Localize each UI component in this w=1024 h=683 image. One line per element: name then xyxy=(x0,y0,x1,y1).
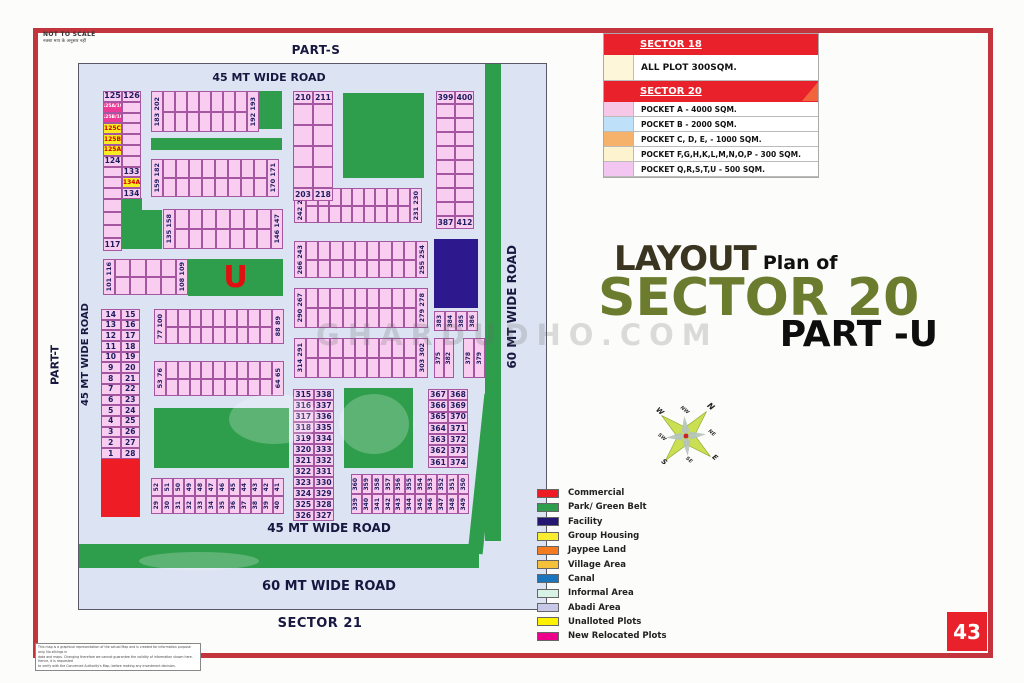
plot-cell xyxy=(318,241,330,260)
legend-row: POCKET F,G,H,K,L,M,N,O,P - 300 SQM. xyxy=(604,147,818,162)
plot-cell: 27 xyxy=(121,437,141,448)
plot-row: 117 xyxy=(103,238,122,251)
plot-row: 1415 xyxy=(101,309,140,320)
plot-cell: 26 xyxy=(121,427,141,438)
plot-number: 326 xyxy=(295,512,311,520)
plot-cell xyxy=(367,338,379,358)
plot-cell: 125A xyxy=(103,145,122,156)
legend-item: Commercial xyxy=(537,486,737,500)
plot-column xyxy=(213,309,225,344)
plot-number: 218 xyxy=(315,191,331,199)
plot-column: 351348 xyxy=(447,474,458,514)
plot-column xyxy=(176,159,189,197)
legend-item: Village Area xyxy=(537,557,737,571)
plot-row: 363372 xyxy=(428,434,468,445)
plot-cell xyxy=(237,309,249,327)
legend-row: POCKET A - 4000 SQM. xyxy=(604,102,818,117)
legend-item: Abadi Area xyxy=(537,600,737,614)
page-number-badge: 43 xyxy=(947,612,987,651)
plot-cell xyxy=(223,91,235,112)
plot-cell xyxy=(189,229,203,249)
plot-cell xyxy=(115,277,130,295)
plot-column xyxy=(306,241,318,278)
plot-cell: 38 xyxy=(251,496,262,514)
plot-cell xyxy=(201,309,213,327)
plot-column xyxy=(189,159,202,197)
plot-number: 133 xyxy=(124,168,140,176)
strip-77-100: 77 10088 89 xyxy=(154,309,284,344)
plot-cell: 34 xyxy=(206,496,217,514)
plot-cell: 146 147 xyxy=(271,209,283,249)
plot-row xyxy=(103,225,122,238)
plot-number: 30 xyxy=(165,501,171,509)
plot-column xyxy=(318,241,330,278)
plot-cell: 382 xyxy=(444,338,454,378)
plot-cell: 125B/19 xyxy=(103,113,122,124)
legend-label: Abadi Area xyxy=(568,603,621,613)
plot-cell xyxy=(343,260,355,279)
plot-column xyxy=(375,188,387,223)
plot-number: 125A xyxy=(104,147,121,153)
plot-number: 170 171 xyxy=(270,163,277,192)
plot-cell: 22 xyxy=(121,384,141,395)
plot-cell: 43 xyxy=(251,478,262,496)
plot-cell xyxy=(146,259,161,277)
plot-cell xyxy=(248,309,260,327)
plot-row: 134A xyxy=(103,177,141,188)
plot-cell xyxy=(355,338,367,358)
legend-item: Jaypee Land xyxy=(537,543,737,557)
plot-cell xyxy=(330,288,342,308)
plot-number: 9 xyxy=(108,364,113,372)
plot-cell xyxy=(329,206,341,224)
plot-cell xyxy=(122,113,141,124)
plot-number: 10 xyxy=(106,353,116,361)
plot-row xyxy=(436,174,474,188)
plot-cell xyxy=(352,188,364,206)
plot-cell xyxy=(455,104,474,118)
plot-cell xyxy=(225,309,237,327)
plot-cell: 9 xyxy=(101,362,121,373)
plot-cell xyxy=(215,178,228,197)
plot-cell: 15 xyxy=(121,309,141,320)
plot-cell: 50 xyxy=(173,478,184,496)
plot-cell xyxy=(379,241,391,260)
legend-swatch xyxy=(537,560,559,569)
plot-cell: 16 xyxy=(121,320,141,331)
plot-number: 266 243 xyxy=(297,245,304,274)
plot-number: 337 xyxy=(316,402,332,410)
park-L-upper xyxy=(121,198,142,249)
not-to-scale-note: NOT TO SCALE नक्शा माप के अनुसार नहीं xyxy=(43,31,95,44)
plot-cell xyxy=(330,358,342,378)
plot-number: 47 xyxy=(209,483,215,491)
park-L-foot xyxy=(142,210,162,249)
plot-cell xyxy=(293,104,313,125)
plot-column: 354345 xyxy=(415,474,426,514)
plot-column xyxy=(367,288,379,328)
plot-column xyxy=(364,188,376,223)
plot-column xyxy=(199,91,211,132)
block-117: 117 xyxy=(103,199,122,251)
plot-cell xyxy=(146,277,161,295)
plot-column xyxy=(398,188,410,223)
strip-53-76: 53 7664 65 xyxy=(154,361,284,396)
plot-cell xyxy=(436,202,455,216)
plot-cell: 373 xyxy=(448,445,468,456)
plot-number: 346 xyxy=(428,498,434,511)
plot-number: 333 xyxy=(316,446,332,454)
road-left-45mt: 45 MT WIDE ROAD xyxy=(77,279,93,429)
plot-row xyxy=(293,146,333,167)
plot-cell: 349 xyxy=(458,494,469,514)
plot-cell xyxy=(225,361,237,379)
plot-column xyxy=(190,361,202,396)
plot-column xyxy=(187,91,199,132)
plot-column xyxy=(257,209,271,249)
plot-column xyxy=(248,361,260,396)
legend-swatch xyxy=(604,132,634,146)
plot-number: 24 xyxy=(125,407,135,415)
plot-cell: 338 xyxy=(314,389,335,400)
plot-cell xyxy=(175,209,189,229)
plot-cell: 117 xyxy=(103,238,122,251)
plot-cell: 341 xyxy=(372,494,383,514)
plot-cell: 356 xyxy=(394,474,405,494)
plot-cell xyxy=(103,212,122,225)
compass-label-sw: SW xyxy=(656,432,667,443)
plot-number: 363 xyxy=(430,436,446,444)
plot-row xyxy=(436,104,474,118)
road-label-text: 60 MT WIDE ROAD xyxy=(505,245,519,369)
plot-cell: 370 xyxy=(448,412,468,423)
plot-cell: 44 xyxy=(240,478,251,496)
plot-number: 53 76 xyxy=(157,368,164,388)
plot-cell xyxy=(379,308,391,328)
plot-number: 362 xyxy=(430,447,446,455)
plot-cell: 345 xyxy=(415,494,426,514)
plot-number: 211 xyxy=(315,94,331,102)
plot-number: 38 xyxy=(253,501,259,509)
plot-column xyxy=(225,309,237,344)
plot-cell xyxy=(257,209,271,229)
plot-cell xyxy=(166,327,178,345)
plot-number: 125A/19 xyxy=(103,105,122,110)
plot-cell: 339 xyxy=(351,494,362,514)
disclaimer-box: This map is a graphical representation o… xyxy=(35,643,201,671)
legend-label: New Relocated Plots xyxy=(568,631,667,641)
compass-label-s: S xyxy=(660,457,669,466)
plot-cell xyxy=(202,159,215,178)
plot-cell xyxy=(201,361,213,379)
plot-cell xyxy=(166,309,178,327)
plot-cell xyxy=(213,309,225,327)
plot-column xyxy=(318,288,330,328)
legend-label: Group Housing xyxy=(568,531,639,541)
plot-number: 77 100 xyxy=(157,314,164,339)
plot-row: 362373 xyxy=(428,445,468,456)
plot-column xyxy=(379,338,391,378)
plot-cell xyxy=(355,358,367,378)
legend-label: ALL PLOT 300SQM. xyxy=(634,55,818,80)
legend-swatch xyxy=(604,162,634,176)
road-bottom-60mt: 60 MT WIDE ROAD xyxy=(229,578,429,594)
plot-cell: 332 xyxy=(314,455,335,466)
plot-number: 2 xyxy=(108,439,113,447)
plot-cell xyxy=(260,361,272,379)
plot-cell: 36 xyxy=(229,496,240,514)
plot-cell: 360 xyxy=(351,474,362,494)
plot-cell xyxy=(293,125,313,146)
plot-cell xyxy=(343,308,355,328)
plot-number: 36 xyxy=(231,501,237,509)
plot-cell: 329 xyxy=(314,488,335,499)
plot-column xyxy=(254,159,267,197)
plot-cell: 134 xyxy=(122,188,141,199)
plot-number: 21 xyxy=(125,375,135,383)
plot-number: 382 xyxy=(446,352,452,365)
plot-cell: 170 171 xyxy=(267,159,279,197)
plot-number: 399 xyxy=(438,94,454,102)
plot-cell: 108 109 xyxy=(176,259,188,295)
plot-row: 367368 xyxy=(428,389,468,400)
plot-number: 332 xyxy=(316,457,332,465)
plot-column xyxy=(228,159,241,197)
plot-row: 399400 xyxy=(436,91,474,104)
legend-swatch xyxy=(537,517,559,526)
plot-number: 365 xyxy=(430,413,446,421)
plot-size-legend: SECTOR 18ALL PLOT 300SQM.SECTOR 20POCKET… xyxy=(603,33,819,178)
plot-column xyxy=(202,209,216,249)
plot-number: 338 xyxy=(316,391,332,399)
plot-column xyxy=(367,338,379,378)
sector-21-label: SECTOR 21 xyxy=(255,616,385,631)
plot-number: 359 xyxy=(364,478,370,491)
plot-cell: 314 291 xyxy=(294,338,306,378)
plot-row: 125126 xyxy=(103,91,141,102)
plot-number: 159 182 xyxy=(154,163,161,192)
plot-cell: 334 xyxy=(314,433,335,444)
plot-number: 348 xyxy=(450,498,456,511)
plot-cell xyxy=(122,123,141,134)
legend-swatch xyxy=(537,617,559,626)
plot-number: 1 xyxy=(108,450,113,458)
plot-number: 117 xyxy=(105,241,121,249)
plot-cell xyxy=(436,132,455,146)
plot-number: 52 xyxy=(154,483,160,491)
plot-cell xyxy=(178,379,190,397)
plot-number: 371 xyxy=(450,425,466,433)
watermark-shape xyxy=(229,394,319,444)
plot-number: 125B/19 xyxy=(103,116,122,121)
plot-column xyxy=(379,241,391,278)
plot-cell: 18 xyxy=(121,341,141,352)
plot-number: 43 xyxy=(253,483,259,491)
plot-number: 125B xyxy=(104,137,121,143)
plot-column xyxy=(216,209,230,249)
plot-column xyxy=(352,188,364,223)
plot-cell: 279 278 xyxy=(416,288,428,328)
plot-cell xyxy=(404,288,416,308)
legend-row: POCKET C, D, E, - 1000 SQM. xyxy=(604,132,818,147)
plot-cell xyxy=(237,379,249,397)
plot-cell xyxy=(201,327,213,345)
plot-cell xyxy=(436,104,455,118)
plot-cell xyxy=(230,229,244,249)
plot-cell xyxy=(306,358,318,378)
plot-row: 128 xyxy=(101,448,140,459)
plot-cell: 337 xyxy=(314,400,335,411)
plot-cell: 375 xyxy=(434,338,444,378)
plot-number: 347 xyxy=(439,498,445,511)
disclaimer-line: This map is a graphical representation o… xyxy=(38,645,198,655)
plot-number: 323 xyxy=(295,479,311,487)
plot-cell: 364 xyxy=(428,423,448,434)
strip-314-291: 314 291303 302 xyxy=(294,338,428,378)
facility-block xyxy=(434,239,478,308)
plot-cell xyxy=(367,308,379,328)
plot-number: 353 xyxy=(428,478,434,491)
plot-number: 364 xyxy=(430,425,446,433)
plot-column xyxy=(202,159,215,197)
plot-column xyxy=(367,241,379,278)
commercial-block xyxy=(101,459,140,517)
legend-swatch xyxy=(537,546,559,555)
plot-number: 385 xyxy=(459,315,465,328)
plot-cell xyxy=(163,112,175,133)
plot-column xyxy=(404,288,416,328)
strip-159-182: 159 182170 171 xyxy=(151,159,279,197)
plot-cell xyxy=(306,338,318,358)
plot-cell: 125A/19 xyxy=(103,102,122,113)
legend-label: Canal xyxy=(568,574,595,584)
plot-cell xyxy=(375,188,387,206)
legend-item: Park/ Green Belt xyxy=(537,500,737,514)
plot-cell: 379 xyxy=(474,338,485,378)
plot-cell xyxy=(202,178,215,197)
plot-cell: 101 116 xyxy=(103,259,115,295)
not-to-scale-text: NOT TO SCALE xyxy=(43,31,95,38)
plot-column xyxy=(343,288,355,328)
plot-cell xyxy=(161,259,176,277)
plot-cell xyxy=(178,309,190,327)
plot-row: 324329 xyxy=(293,488,334,499)
strip-183-202: 183 202192 193 xyxy=(151,91,259,132)
plot-row xyxy=(436,118,474,132)
plot-column xyxy=(225,361,237,396)
plot-cell: 135 158 xyxy=(163,209,175,249)
plot-column xyxy=(343,338,355,378)
plot-cell: 211 xyxy=(313,91,333,104)
plot-number: 48 xyxy=(198,483,204,491)
plot-number: 412 xyxy=(457,219,473,227)
pocket-u-letter: U xyxy=(223,263,247,293)
plot-cell: 357 xyxy=(383,474,394,494)
plot-cell xyxy=(343,338,355,358)
plot-cell xyxy=(392,308,404,328)
plot-cell xyxy=(367,358,379,378)
plot-cell: 126 xyxy=(122,91,141,102)
plot-cell xyxy=(178,361,190,379)
plot-column xyxy=(260,309,272,344)
plot-number: 328 xyxy=(316,501,332,509)
plot-cell: 183 202 xyxy=(151,91,163,132)
plot-number: 343 xyxy=(396,498,402,511)
plot-cell: 77 100 xyxy=(154,309,166,344)
plot-row: 125A/19 xyxy=(103,102,141,113)
plot-cell xyxy=(260,309,272,327)
plot-column xyxy=(318,338,330,378)
plot-number: 386 xyxy=(470,315,476,328)
plot-cell xyxy=(404,358,416,378)
plot-cell xyxy=(241,178,254,197)
plot-cell xyxy=(216,229,230,249)
plot-number: 279 278 xyxy=(419,293,426,322)
plot-cell xyxy=(313,146,333,167)
block-210-218: 210211203218 xyxy=(293,91,333,201)
plot-column: 4734 xyxy=(206,478,217,514)
plot-number: 322 xyxy=(295,468,311,476)
plot-cell: 32 xyxy=(184,496,195,514)
plot-cell: 6 xyxy=(101,395,121,406)
plot-cell: 290 267 xyxy=(294,288,306,328)
park-square-small xyxy=(259,91,282,129)
plot-row: 203218 xyxy=(293,188,333,201)
plot-column: 360339 xyxy=(351,474,362,514)
plot-column xyxy=(237,309,249,344)
plot-cell: 45 xyxy=(229,478,240,496)
plot-column xyxy=(230,209,244,249)
plot-number: 134 xyxy=(124,190,140,198)
plot-cell: 33 xyxy=(195,496,206,514)
road-top-45mt: 45 MT WIDE ROAD xyxy=(139,70,399,84)
legend-swatch xyxy=(537,574,559,583)
plot-row: 361374 xyxy=(428,457,468,468)
plot-number: 46 xyxy=(220,483,226,491)
plot-cell xyxy=(254,178,267,197)
plot-number: 49 xyxy=(187,483,193,491)
plot-cell xyxy=(187,112,199,133)
plot-row: 124 xyxy=(103,156,141,167)
plot-row xyxy=(436,188,474,202)
plot-number: 12 xyxy=(106,332,116,340)
legend-label: POCKET B - 2000 SQM. xyxy=(634,117,818,131)
plot-cell xyxy=(387,188,399,206)
plot-cell xyxy=(225,379,237,397)
plot-cell xyxy=(436,118,455,132)
plot-row: 322331 xyxy=(293,466,334,477)
plot-cell xyxy=(175,112,187,133)
plot-number: 7 xyxy=(108,385,113,393)
plot-cell: 12 xyxy=(101,330,121,341)
plot-number: 51 xyxy=(165,483,171,491)
plot-cell: 218 xyxy=(313,188,333,201)
plot-cell: 348 xyxy=(447,494,458,514)
plot-column xyxy=(392,338,404,378)
plot-number: 124 xyxy=(105,157,121,165)
legend-swatch xyxy=(537,532,559,541)
plot-cell xyxy=(103,225,122,238)
plot-cell xyxy=(293,146,313,167)
plot-cell: 363 xyxy=(428,434,448,445)
compass-label-nw: NW xyxy=(679,405,691,416)
plot-cell xyxy=(190,379,202,397)
plot-cell: 31 xyxy=(173,496,184,514)
plot-column xyxy=(404,241,416,278)
plot-column xyxy=(355,241,367,278)
plot-number: 4 xyxy=(108,417,113,425)
plot-cell: 5 xyxy=(101,405,121,416)
